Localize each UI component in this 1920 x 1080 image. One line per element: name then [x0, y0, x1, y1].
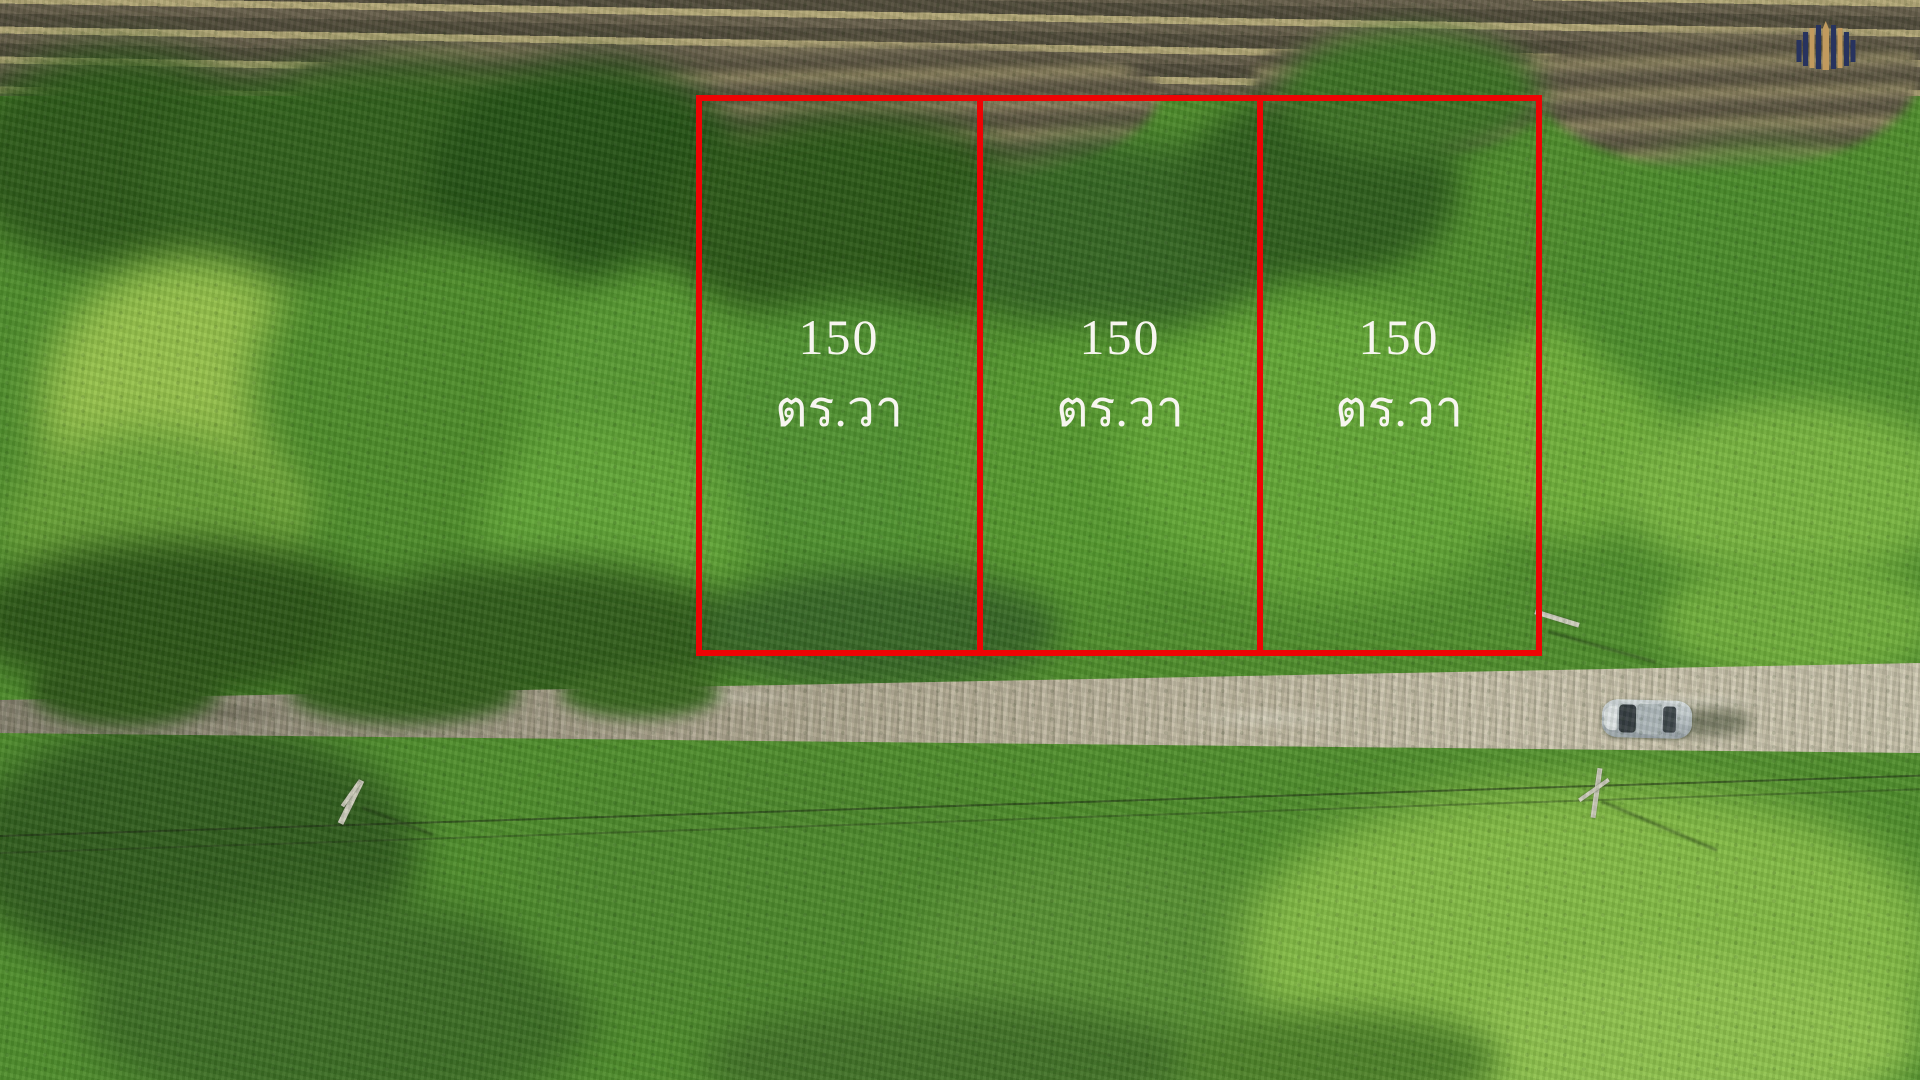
brand-logo-icon: [1795, 20, 1857, 70]
plot-3-area-unit: ตร.วา: [1279, 384, 1519, 434]
plot-2-area-value: 150: [1000, 312, 1240, 362]
plot-2-label: 150 ตร.วา: [1000, 312, 1240, 434]
plot-divider-line: [977, 101, 983, 650]
plot-3-label: 150 ตร.วา: [1279, 312, 1519, 434]
plot-annotations: 150 ตร.วา 150 ตร.วา 150 ตร.วา: [0, 0, 1920, 1080]
plot-divider-line: [1257, 101, 1263, 650]
plot-1-label: 150 ตร.วา: [719, 312, 959, 434]
plot-1-area-unit: ตร.วา: [719, 384, 959, 434]
plot-2-area-unit: ตร.วา: [1000, 384, 1240, 434]
aerial-land-listing-screenshot: 150 ตร.วา 150 ตร.วา 150 ตร.วา: [0, 0, 1920, 1080]
plot-3-area-value: 150: [1279, 312, 1519, 362]
plot-1-area-value: 150: [719, 312, 959, 362]
plot-boundary-rectangles: 150 ตร.วา 150 ตร.วา 150 ตร.วา: [696, 95, 1542, 656]
